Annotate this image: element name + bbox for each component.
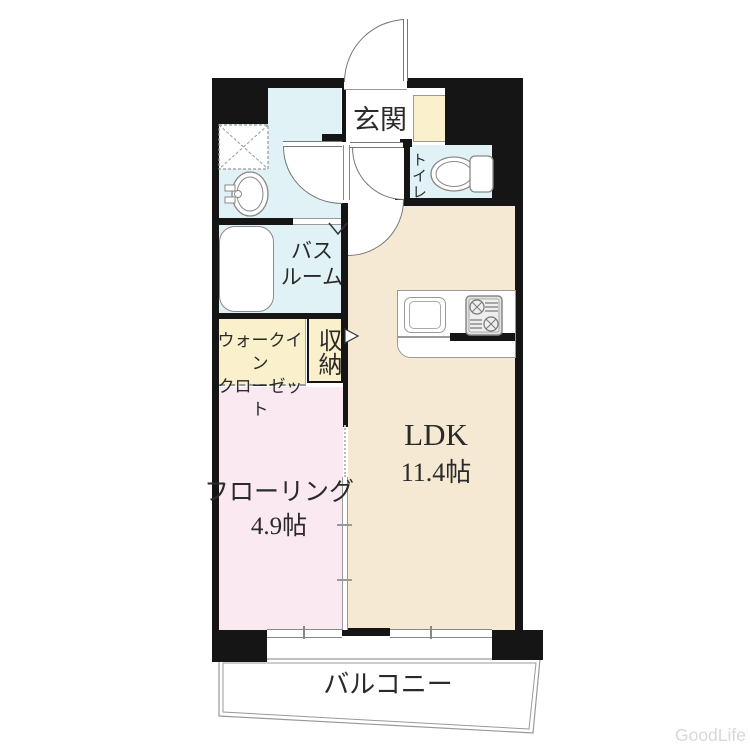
storage-arrow-icon xyxy=(343,327,361,345)
label-ldk: LDK 11.4帖 xyxy=(356,419,516,493)
label-bathroom-line2: ルーム xyxy=(281,265,343,289)
label-wic-line2: クローゼット xyxy=(218,377,303,419)
washbasin-icon xyxy=(222,170,274,220)
wall-genkan-right-block xyxy=(445,78,523,145)
label-walk-in-closet: ウォークイン クローゼット xyxy=(210,329,310,421)
label-ldk-name: LDK xyxy=(404,417,468,452)
kitchen-counter-divider xyxy=(397,336,451,338)
sliding-door-dotted xyxy=(344,425,346,477)
label-flooring-name: フローリング xyxy=(204,479,354,506)
entrance-door-leaf xyxy=(403,19,408,81)
bathroom-folding-door-icon xyxy=(326,221,350,237)
label-bathroom-line1: バス xyxy=(291,239,333,263)
wall-corner-notch xyxy=(212,78,268,124)
watermark: GoodLife xyxy=(674,725,746,746)
label-toilet: トイレ xyxy=(408,148,429,204)
window-ldk xyxy=(390,629,492,638)
floor-plan: 玄関 トイレ バス ルーム ウォークイン クローゼット 収納 LDK 11.4帖… xyxy=(0,0,750,750)
label-balcony: バルコニー xyxy=(308,664,468,701)
wall-bottom-mid-segment xyxy=(342,628,390,636)
wall-bathroom-bottom xyxy=(212,313,348,319)
label-storage: 収納 xyxy=(310,322,345,382)
label-genkan: 玄関 xyxy=(344,98,416,137)
wall-bottom-left-block xyxy=(212,630,267,662)
kitchen-stove-icon xyxy=(465,295,503,336)
wall-bottom-right-block xyxy=(492,630,543,660)
label-flooring-size: 4.9帖 xyxy=(251,513,307,540)
label-bathroom: バス ルーム xyxy=(262,238,362,290)
label-flooring: フローリング 4.9帖 xyxy=(199,477,359,545)
label-ldk-size: 11.4帖 xyxy=(401,458,472,487)
kitchen-sink-icon xyxy=(404,297,446,333)
wall-toilet-right xyxy=(492,145,523,206)
laundry-space-icon xyxy=(218,124,269,170)
toilet-icon xyxy=(428,153,496,197)
wall-center-vertical-lower xyxy=(343,383,348,427)
sliding-door-tick-2 xyxy=(337,579,352,581)
window-ldk-tick xyxy=(430,626,432,639)
window-flooring-tick xyxy=(303,626,305,639)
window-flooring xyxy=(267,629,342,638)
label-wic-line1: ウォークイン xyxy=(218,331,303,373)
partition-hallway-left xyxy=(343,145,350,200)
